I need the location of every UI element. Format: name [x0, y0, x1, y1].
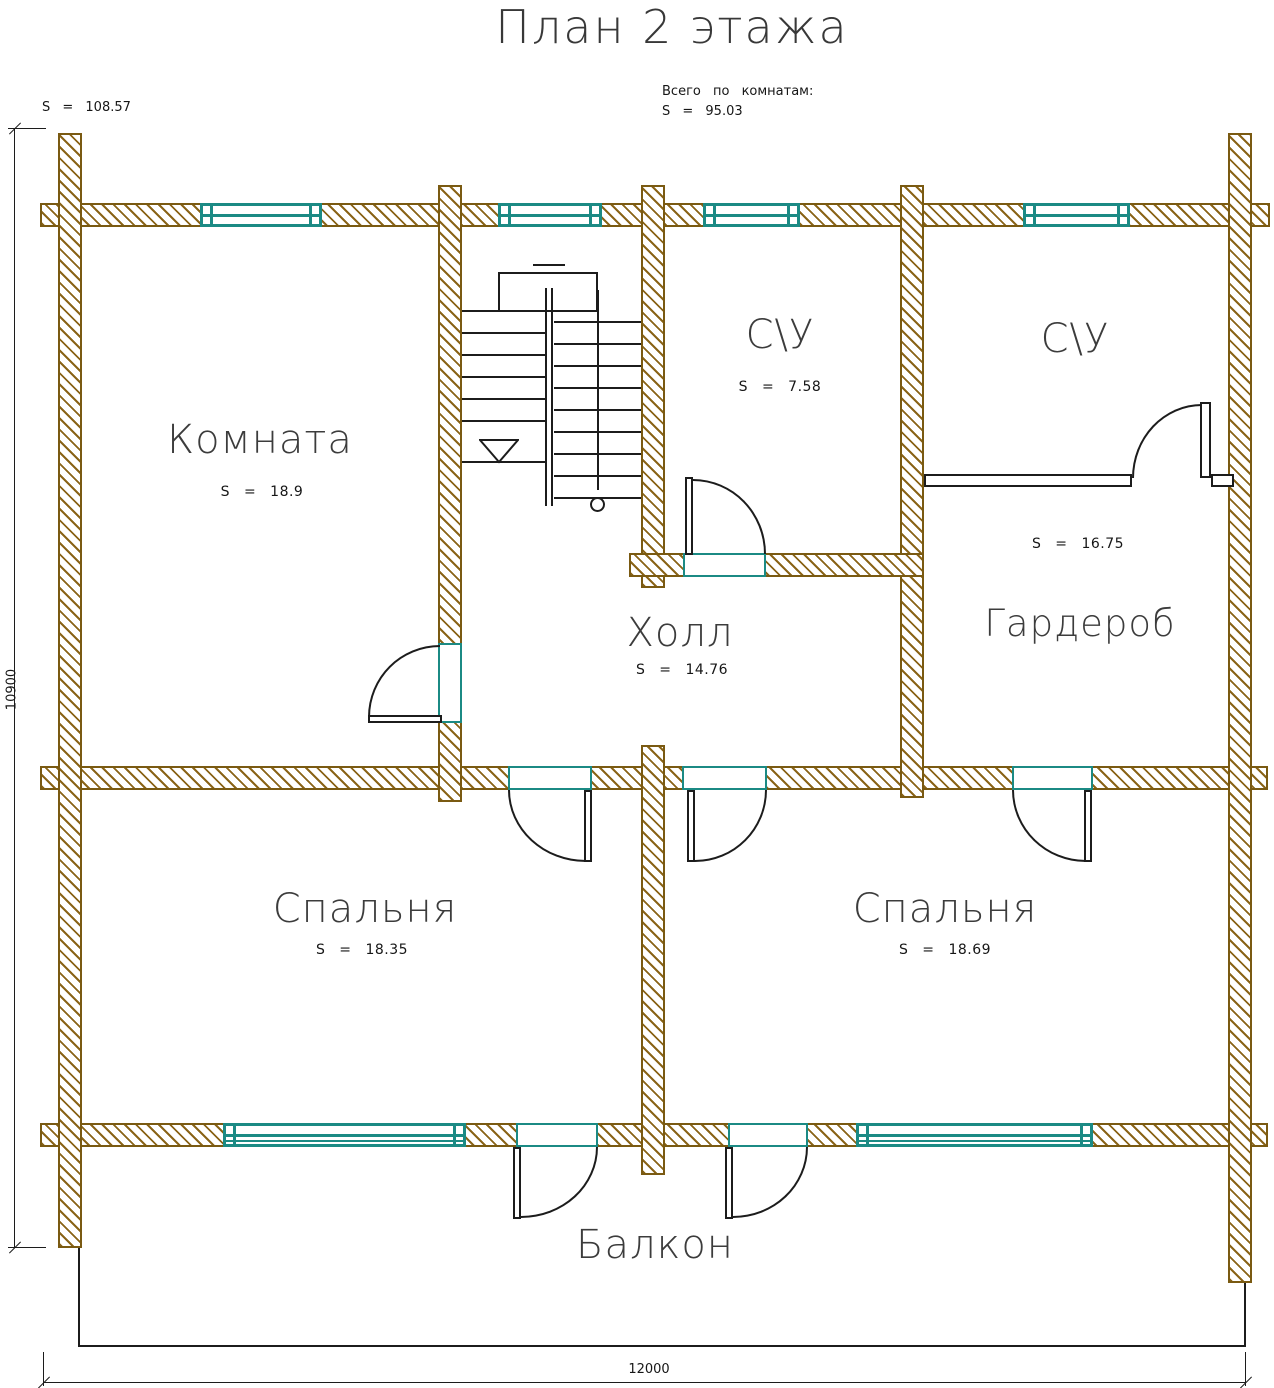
door-arc-su-left [693, 479, 766, 554]
window-bottom-right [856, 1123, 1093, 1147]
room-area-garderob: S = 16.75 [1032, 536, 1124, 552]
stair-down-arrow-icon [479, 439, 519, 464]
wall-left [58, 133, 82, 1248]
partition-garderob-stub [1211, 474, 1234, 487]
stair-newel-circle [590, 497, 605, 512]
door-arc-balcony-left [521, 1147, 598, 1218]
door-leaf-su-left [685, 477, 693, 555]
window-top-su [703, 203, 800, 227]
wall-stair-right [641, 185, 665, 588]
door-leaf-su-right [1200, 402, 1211, 478]
door-arc-balcony-right [733, 1147, 808, 1218]
room-label-spalnya-right: Спальня [853, 886, 1038, 932]
stair-handrail [597, 290, 599, 490]
window-bottom-left [223, 1123, 466, 1147]
floor-plan: План 2 этажа Всего по комнатам: S = 95.0… [0, 0, 1274, 1388]
door-leaf-bedroom-left [584, 790, 592, 862]
room-area-spalnya-right: S = 18.69 [899, 942, 991, 958]
door-leaf-balcony-left [513, 1147, 521, 1219]
room-label-su-left: С\У [746, 312, 815, 358]
room-label-su-right: С\У [1041, 316, 1110, 362]
door-leaf-garderob [1084, 790, 1092, 862]
room-area-spalnya-left: S = 18.35 [316, 942, 408, 958]
partition-garderob [924, 474, 1132, 487]
room-label-balkon: Балкон [576, 1222, 734, 1268]
total-by-rooms-value: S = 95.03 [662, 104, 743, 119]
floor-area-label: S = 108.57 [42, 100, 131, 115]
door-arc-bedroom-left [508, 790, 586, 862]
door-arc-bedroom-right [695, 790, 767, 862]
door-frame-bedroom-right [682, 766, 767, 790]
window-top-1 [200, 203, 322, 227]
door-leaf-komnata [368, 715, 442, 723]
page-title: План 2 этажа [372, 0, 972, 54]
window-top-stairs [498, 203, 602, 227]
door-arc-su-right [1132, 404, 1202, 478]
wall-right [1228, 133, 1252, 1283]
total-by-rooms-label: Всего по комнатам: [662, 84, 813, 99]
stair-top-dash [533, 264, 565, 266]
room-label-holl: Холл [626, 610, 733, 656]
room-area-su-left: S = 7.58 [739, 379, 822, 395]
window-top-right [1023, 203, 1130, 227]
wall-su-bottom [629, 553, 924, 577]
dim-line-bottom [43, 1382, 1245, 1383]
wall-bedroom-divider [641, 745, 665, 1175]
door-arc-garderob [1012, 790, 1086, 862]
door-frame-balcony-right [728, 1123, 808, 1147]
door-frame-bedroom-left [508, 766, 592, 790]
door-frame-balcony-left [516, 1123, 598, 1147]
balcony-edge-bottom [78, 1345, 1246, 1347]
stair-landing [498, 272, 598, 312]
door-frame-garderob [1012, 766, 1093, 790]
door-leaf-balcony-right [725, 1147, 733, 1219]
room-label-spalnya-left: Спальня [273, 886, 458, 932]
dim-label-left: 10900 [5, 660, 20, 720]
door-arc-komnata [368, 645, 440, 717]
door-frame-su-left [683, 553, 766, 577]
room-label-garderob: Гардероб [984, 602, 1175, 645]
dim-label-bottom: 12000 [594, 1362, 704, 1377]
door-frame-komnata [438, 643, 462, 723]
balcony-edge-right [1244, 1283, 1246, 1347]
balcony-edge-left [78, 1248, 80, 1347]
room-area-holl: S = 14.76 [636, 662, 728, 678]
stair-rail [545, 288, 547, 506]
wall-su-divider [900, 185, 924, 798]
room-label-komnata: Комната [167, 417, 353, 463]
door-leaf-bedroom-right [687, 790, 695, 862]
room-area-komnata: S = 18.9 [221, 484, 304, 500]
stair-rail [551, 288, 553, 506]
